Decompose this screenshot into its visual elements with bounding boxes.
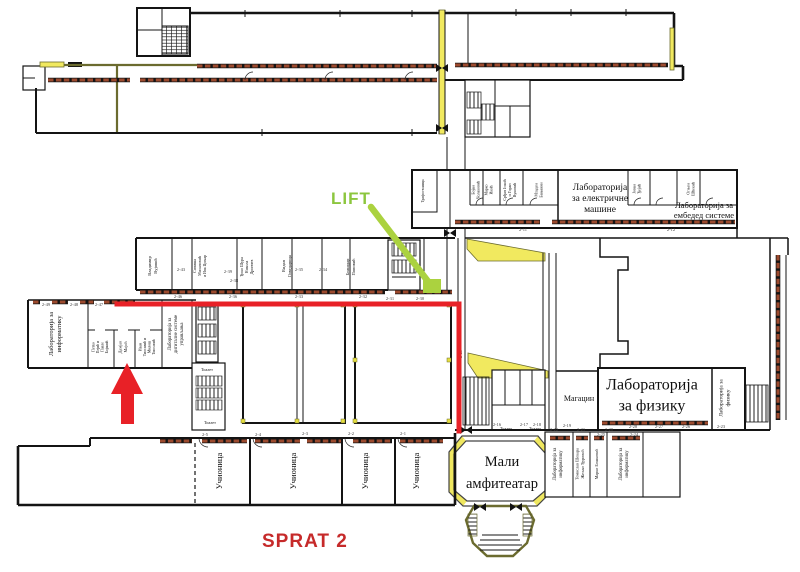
toilet-label: Тоалет (204, 420, 216, 425)
room-number: 2-5 (202, 432, 209, 437)
office-label: ОгњенШћекић (686, 182, 696, 196)
room-number: 2-35 (295, 267, 304, 272)
floor-plan-image: Лабораторијаза електричнемашинеЛаборатор… (0, 0, 800, 572)
lift-label: LIFT (331, 190, 371, 207)
office-label: ПеткоПејић иПавлеБојанић (91, 341, 109, 354)
room-number: 2-19 (563, 423, 572, 428)
room-number: 2-31 (386, 296, 394, 301)
room-number: 2-28 (629, 424, 638, 429)
bottom-right-labs (545, 432, 680, 497)
room-number: 2-17 (520, 422, 529, 427)
office-label: ВиданГоведарица (281, 255, 292, 277)
office-label: МладенБањанин (534, 182, 544, 198)
route-arrow (111, 363, 143, 424)
halls (241, 303, 451, 423)
floor-plan-svg: Лабораторијаза електричнемашинеЛаборатор… (0, 0, 800, 572)
classroom-labels: УчионицаУчионицаУчионицаУчионица (214, 453, 421, 490)
classroom-label: Учионица (214, 453, 224, 490)
office-label: СинишаМилановићи Ива Цоњар (192, 255, 207, 277)
room-number: 2-23 (717, 424, 726, 429)
storage-label: Магацин (564, 394, 595, 403)
office-label: Ђоко ШураНиколаДринчев (239, 257, 254, 277)
room-number: 2-20 (605, 427, 614, 432)
room-number: 2-18 (533, 422, 542, 427)
office-label: Марко Бошковић (594, 448, 599, 479)
room-number: 2-39 (224, 269, 233, 274)
room-number: 2-26 (682, 424, 691, 429)
classroom-label: Учионица (411, 453, 421, 490)
room-number: 2-22 (550, 427, 558, 432)
office-label: Томислав ШекараЖељко Ђуровић (574, 448, 585, 480)
lab-informatics-br2-label: Лабораторија заинформатику (619, 447, 630, 481)
room-number: 2-46 (174, 294, 183, 299)
lab-embedded-label: Лабораторија заембедед системе (674, 200, 734, 220)
office-label: Трафостаница (421, 179, 425, 202)
office-label: ЈованЂејић (632, 183, 642, 194)
offices-row (136, 238, 455, 292)
classroom-label: Учионица (360, 453, 370, 490)
room-number: 2-43 (177, 267, 186, 272)
office-label: МаркоИкић (484, 184, 494, 195)
right-top-wing (436, 10, 683, 170)
classrooms-building (18, 433, 455, 505)
room-number: 2-3 (302, 431, 309, 436)
room-number: 2-36 (229, 294, 238, 299)
room-number: 2-12 (667, 227, 675, 232)
room-number: 2-11 (519, 227, 527, 232)
office-label: ВладимирВујовић (147, 256, 158, 276)
room-number: 2-21 (577, 427, 585, 432)
room-number: 2-27 (655, 424, 664, 429)
room-number: 2-34 (319, 267, 328, 272)
room-number: 2-48 (70, 302, 79, 307)
office-label: ИванТиосавић иМилошТиосавић (138, 338, 156, 356)
lab-digital-systems-label: Лабораторија задигиталне системеуправљањ… (168, 315, 185, 353)
room-number: 2-16 (493, 422, 502, 427)
room-number: 2-33 (295, 294, 304, 299)
room-number: 2-38 (230, 278, 239, 283)
room-number: 2-47 (95, 302, 104, 307)
room-number: 2-32 (359, 294, 367, 299)
classroom-label: Учионица (288, 453, 298, 490)
room-number: 2-2 (348, 431, 354, 436)
top-wing (23, 8, 674, 136)
toilet-label: Тоалет (500, 426, 512, 431)
lab-informatics-br1-label: Лабораторија заинформатику (553, 447, 564, 481)
room-number: 2-30 (416, 296, 425, 301)
room-number: 2-49 (42, 302, 51, 307)
office-label: ДамјанМајић (117, 340, 128, 353)
room-number: 2-1 (400, 431, 406, 436)
office-label: БожидарПоповић (345, 258, 356, 276)
floor-label: SPRAT 2 (262, 532, 348, 551)
lab-informatics-left-label: Лабораторија заинформатику (48, 312, 63, 356)
room-number: 2-25 (597, 432, 606, 437)
lift-marker (423, 279, 441, 293)
room-number: 2-24 (630, 432, 639, 437)
toilet-label: Тоалет (201, 367, 213, 372)
room-number: 2-4 (255, 432, 262, 437)
